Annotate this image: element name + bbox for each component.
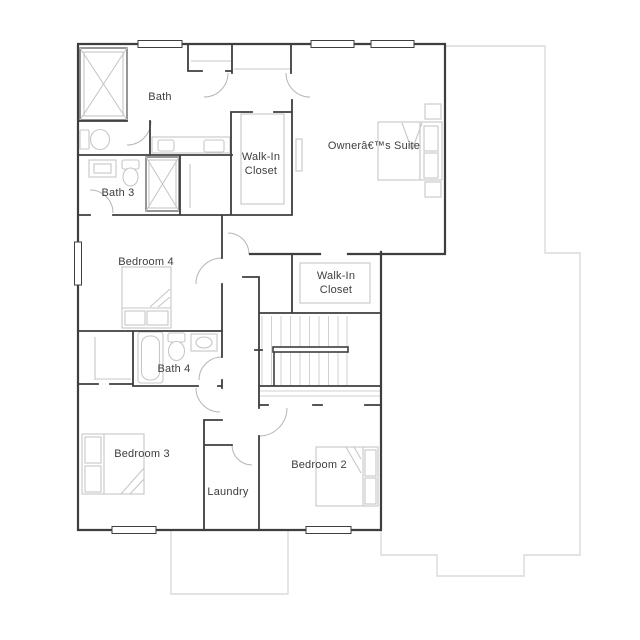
window-suite-top-left <box>311 41 354 48</box>
window-bedroom3-bottom <box>112 527 156 534</box>
room-label-laundry: Laundry <box>207 486 248 498</box>
toilet-bath3 <box>122 160 139 186</box>
room-label-walkin2-line1: Walk-In <box>317 270 355 282</box>
window-bedroom2-bottom <box>306 527 351 534</box>
shower-bath3 <box>146 157 179 211</box>
room-label-bedroom2: Bedroom 2 <box>291 459 347 471</box>
door-arc-bath4 <box>199 357 222 380</box>
bed-bedroom2 <box>316 447 378 506</box>
door-arc-owners-suite <box>228 233 249 254</box>
door-arc-suite-bath <box>286 73 310 97</box>
door-arc-bedroom3 <box>196 388 220 412</box>
floor-plan-page: Bath Bath 3 Walk-In Closet Ownerâ€™s Sui… <box>0 0 640 640</box>
stair-handrail <box>273 347 348 352</box>
shower-owner-bath <box>80 48 127 120</box>
staircase <box>260 316 381 396</box>
toilet-owner-bath <box>80 130 110 150</box>
room-label-walkin2-line2: Closet <box>320 284 352 296</box>
toilet-bath4 <box>168 333 185 361</box>
sink-bath4 <box>191 334 217 351</box>
room-label-bedroom3: Bedroom 3 <box>114 448 170 460</box>
room-label-walkin1-line2: Closet <box>245 165 277 177</box>
room-label-walkin1-line1: Walk-In <box>242 151 280 163</box>
room-label-bath3: Bath 3 <box>101 187 134 199</box>
room-label-bedroom4: Bedroom 4 <box>118 256 174 268</box>
door-arc-toilet-room <box>127 121 151 145</box>
stair-landing-lines <box>260 391 381 396</box>
door-arc-bedroom4 <box>196 258 222 284</box>
door-arc-laundry <box>232 445 252 465</box>
bedroom3-closet-shelving <box>95 337 131 380</box>
window-suite-top-right <box>371 41 414 48</box>
window-bath-top <box>138 41 182 48</box>
room-label-owners-suite: Ownerâ€™s Suite <box>328 140 420 152</box>
bed-bedroom4 <box>122 267 171 328</box>
suite-dresser <box>296 139 302 171</box>
door-arc-bedroom2 <box>259 408 287 436</box>
vanity-owner-bath <box>152 137 230 153</box>
closet2-shelving <box>300 263 370 303</box>
door-arc-linen-closet <box>204 73 228 97</box>
bed-bedroom3 <box>82 434 144 494</box>
sink-bath3 <box>89 160 116 177</box>
first-floor-outline <box>171 46 580 594</box>
room-label-bath4: Bath 4 <box>157 363 190 375</box>
tub-bath4 <box>138 332 163 383</box>
floor-plan-drawing: Bath Bath 3 Walk-In Closet Ownerâ€™s Sui… <box>0 0 640 640</box>
window-bedroom4-left <box>75 242 82 285</box>
fixtures <box>80 48 442 506</box>
room-label-bath: Bath <box>148 91 171 103</box>
ghost-outline-bottom <box>171 531 288 594</box>
